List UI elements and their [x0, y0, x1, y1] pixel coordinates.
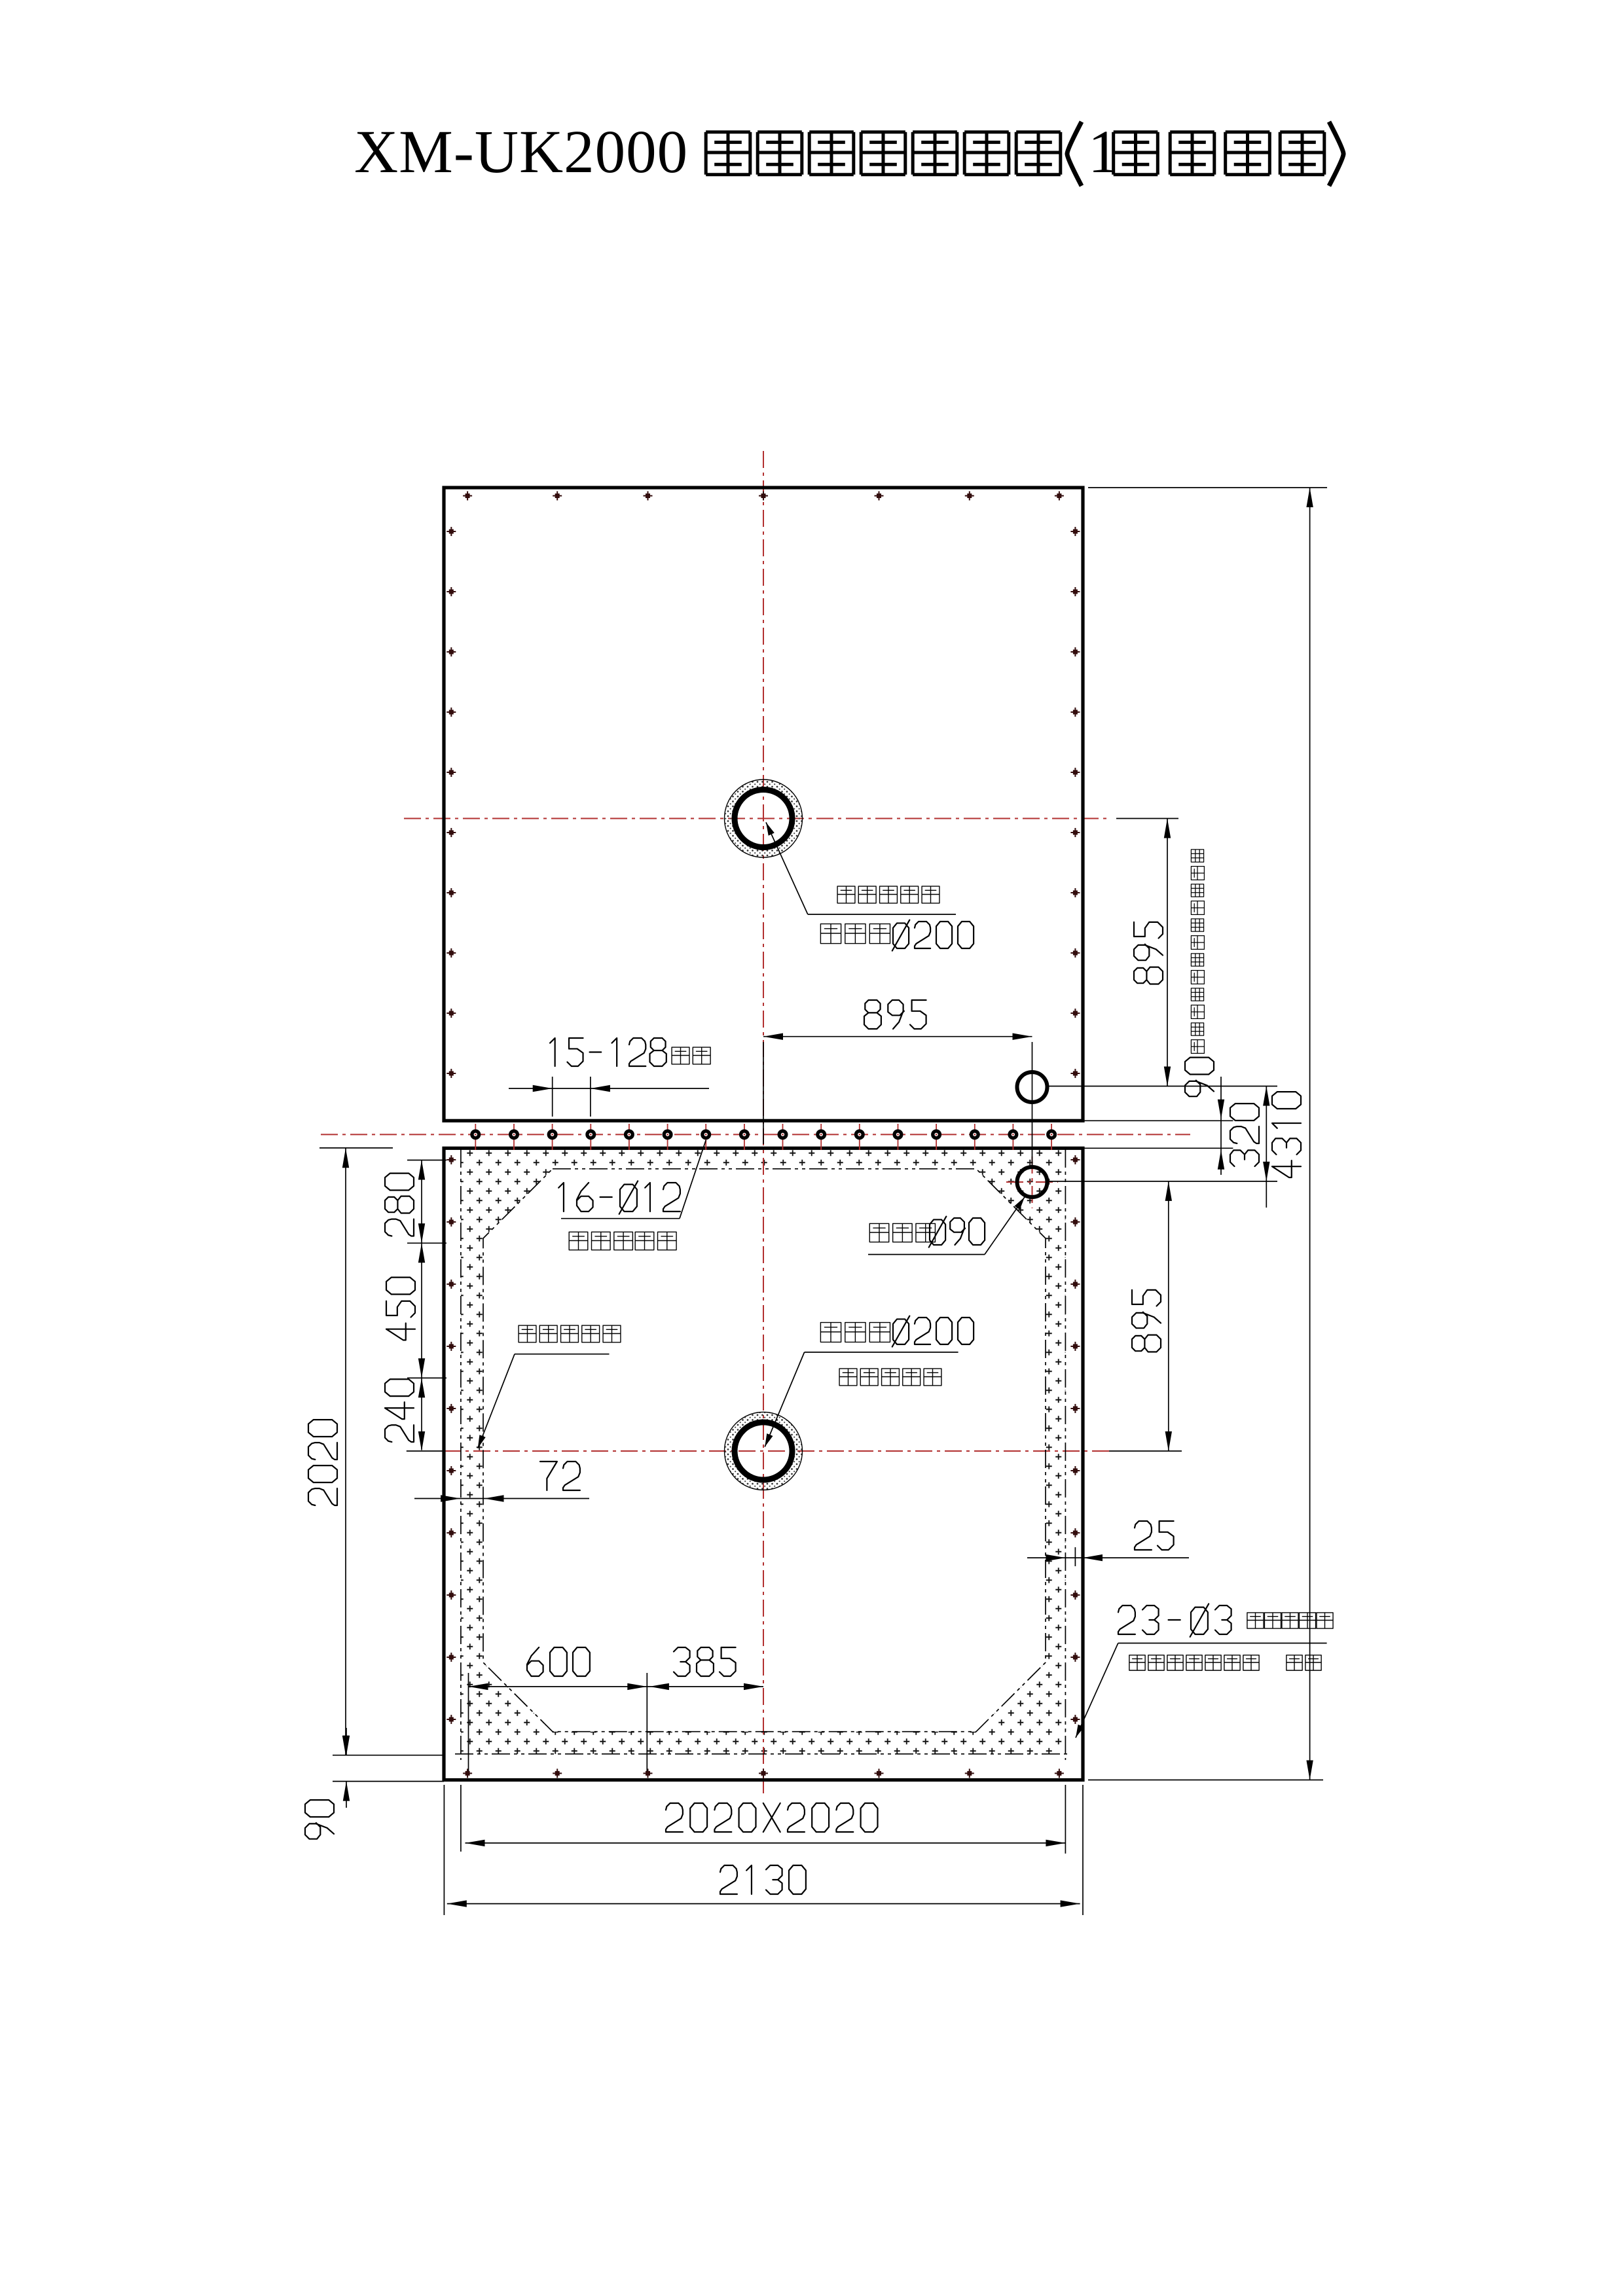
svg-text:XM-UK2000: XM-UK2000: [354, 118, 688, 186]
